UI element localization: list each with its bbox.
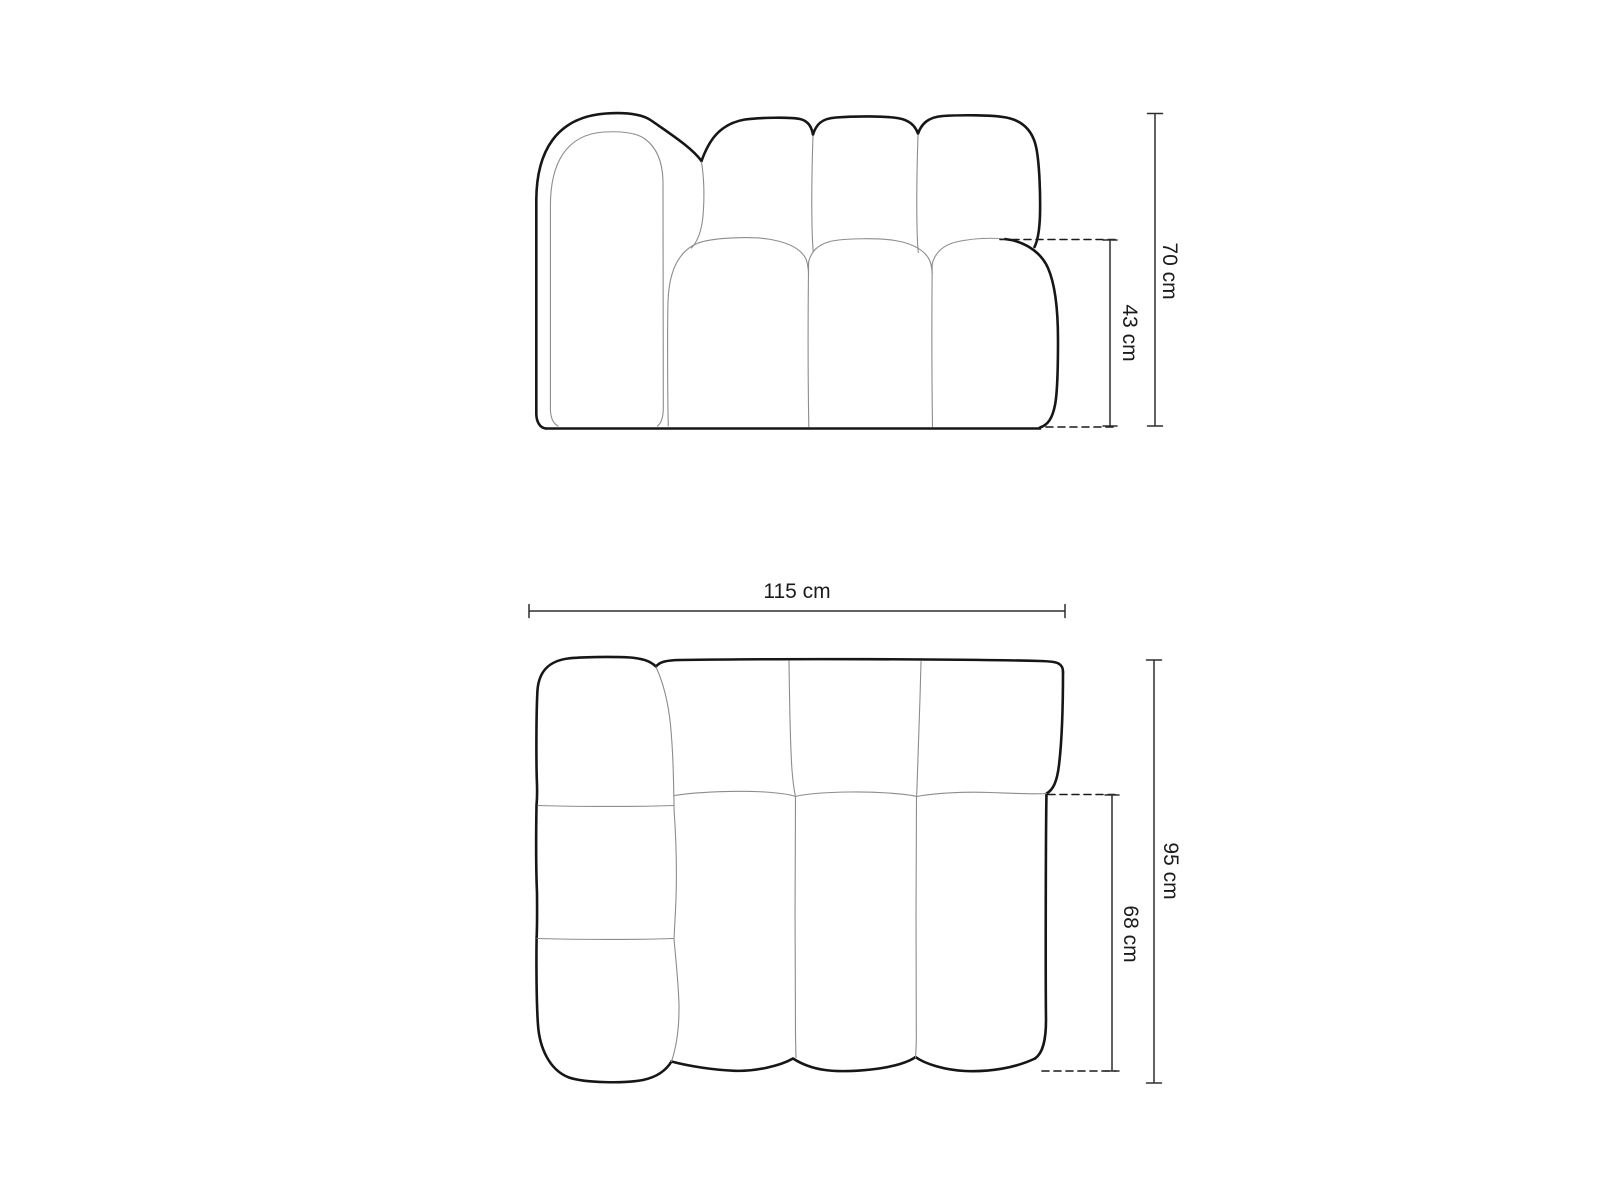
top-seat-seam-2: [916, 797, 917, 1058]
front-back-seam-1: [812, 136, 813, 252]
top-seat-seam-1: [795, 797, 796, 1058]
top-width-dimension-line: [529, 605, 1065, 618]
front-armrest-outline: [536, 113, 701, 428]
front-seat-seam-1: [808, 262, 809, 427]
top-armrest-outline: [536, 657, 671, 1082]
top-seat-depth-dimension-label: 68 cm: [1119, 905, 1142, 962]
front-seat-height-dimension-line: [1103, 240, 1117, 426]
front-seat-cushion-1: [668, 238, 809, 426]
front-seat-height-dimension-label: 43 cm: [1118, 304, 1141, 361]
front-back-cushion-1: [702, 118, 814, 161]
top-backrest-seam-1: [789, 661, 796, 797]
top-armrest-right-seam: [656, 667, 679, 1062]
top-seat-front-edge: [672, 1057, 1036, 1071]
top-backrest-rear-edge: [656, 659, 1063, 672]
front-armrest-inner-outline: [550, 132, 663, 426]
sofa-dimension-diagram: 70 cm 43 cm: [0, 0, 1600, 1200]
front-seat-cushion-2: [809, 239, 933, 273]
front-height-dimension-label: 70 cm: [1158, 242, 1181, 299]
front-back-cushion-2: [813, 116, 918, 134]
top-backrest-seam-2: [917, 662, 922, 797]
front-seat-cushion-3: [932, 238, 1005, 264]
top-right-edge: [1035, 672, 1063, 1059]
front-view: 70 cm 43 cm: [536, 113, 1181, 428]
top-view: 115 cm 95 cm 68 cm: [529, 580, 1182, 1083]
top-depth-dimension-label: 95 cm: [1159, 842, 1182, 899]
front-seat-seam-2: [932, 264, 933, 427]
top-width-dimension-label: 115 cm: [763, 580, 830, 603]
front-armrest-right-seam: [692, 162, 704, 248]
top-armrest-divider-1: [538, 806, 674, 807]
diagram-canvas: 70 cm 43 cm: [0, 0, 1600, 1200]
top-seat-depth-dimension-line: [1105, 795, 1119, 1071]
front-back-cushion-3: [918, 115, 1040, 247]
top-armrest-divider-2: [537, 939, 673, 940]
front-back-seam-2: [917, 135, 918, 253]
front-seat-right-edge: [1005, 239, 1058, 428]
top-backrest-front-edge: [675, 791, 1047, 796]
